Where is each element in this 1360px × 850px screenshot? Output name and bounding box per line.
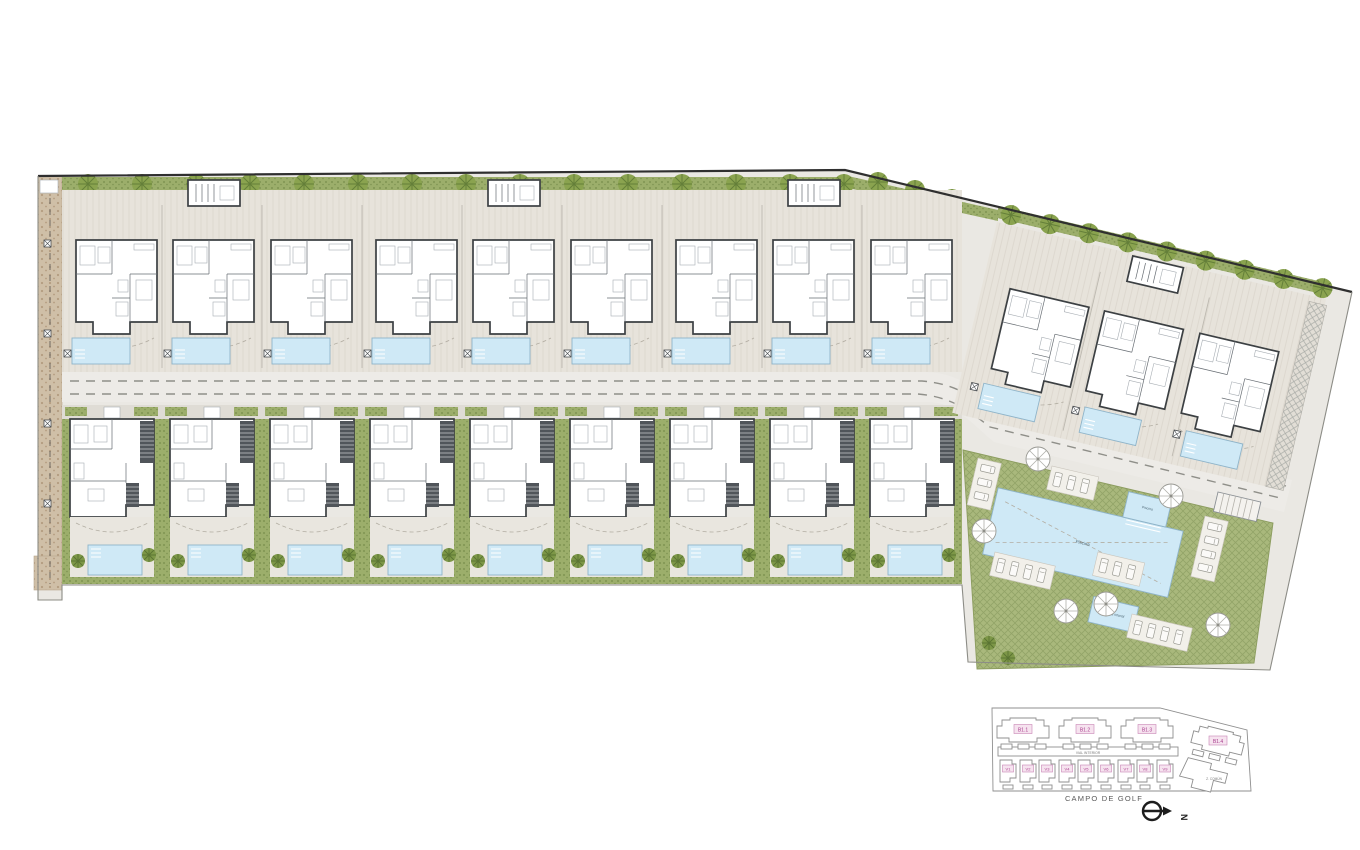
north-label: N — [1179, 814, 1189, 821]
keyplan-block-label: B1.2 — [1080, 728, 1091, 734]
path-utility-box — [44, 500, 51, 507]
keyplan-villa-label: V2 — [1026, 767, 1032, 772]
private-pool — [572, 338, 630, 364]
private-pool — [872, 338, 930, 364]
key-plan: VIAL INTERIOR B1.1 B1.2 B1.3 B1.4 V1 V2 … — [992, 708, 1251, 821]
private-pool — [72, 338, 130, 364]
townhouse-unit — [562, 405, 662, 584]
townhouse-unit — [462, 405, 562, 584]
parasol-icon — [972, 519, 996, 543]
keyplan-road-label: VIAL INTERIOR — [1076, 751, 1101, 755]
keyplan-villa-label: V6 — [1104, 767, 1110, 772]
parasol-icon — [1206, 613, 1230, 637]
private-pool — [172, 338, 230, 364]
private-pool — [272, 338, 330, 364]
site-plan: Piscina Piscina Piscina infantil VIAL IN… — [0, 0, 1360, 850]
parasol-icon — [1026, 447, 1050, 471]
path-utility-box — [44, 330, 51, 337]
townhouse-row — [62, 405, 962, 584]
parasol-icon — [1054, 599, 1078, 623]
parasol-icon — [1159, 484, 1183, 508]
keyplan-villa-label: V4 — [1065, 767, 1071, 772]
keyplan-villa-label: V3 — [1045, 767, 1051, 772]
private-pool — [472, 338, 530, 364]
parasol-icon — [1094, 592, 1118, 616]
private-pool — [772, 338, 830, 364]
golf-course-label: CAMPO DE GOLF — [1065, 794, 1143, 803]
north-arrow-icon: N — [1143, 802, 1189, 821]
keyplan-block-label: B1.1 — [1018, 728, 1029, 734]
keyplan-communal-label: Z. COMÚN — [1206, 776, 1222, 781]
keyplan-villa-label: V7 — [1124, 767, 1130, 772]
keyplan-block-label: B1.4 — [1213, 739, 1224, 745]
keyplan-villa-label: V9 — [1163, 767, 1169, 772]
townhouse-unit — [662, 405, 762, 584]
palm-icon — [982, 636, 996, 650]
townhouse-unit — [162, 405, 262, 584]
keyplan-block-label: B1.3 — [1142, 728, 1153, 734]
keyplan-villa-label: V5 — [1084, 767, 1090, 772]
townhouse-unit — [362, 405, 462, 584]
private-pool — [672, 338, 730, 364]
townhouse-unit — [762, 405, 862, 584]
townhouse-unit — [62, 405, 162, 584]
tree-icon — [868, 172, 888, 192]
path-utility-box — [44, 240, 51, 247]
townhouse-unit — [262, 405, 362, 584]
keyplan-villa-label: V1 — [1006, 767, 1012, 772]
private-pool — [372, 338, 430, 364]
path-utility-box — [44, 420, 51, 427]
keyplan-villa-label: V8 — [1143, 767, 1149, 772]
top-row-parcels — [62, 180, 962, 372]
masterplan-page: Piscina Piscina Piscina infantil VIAL IN… — [0, 0, 1360, 850]
townhouse-unit — [862, 405, 962, 584]
